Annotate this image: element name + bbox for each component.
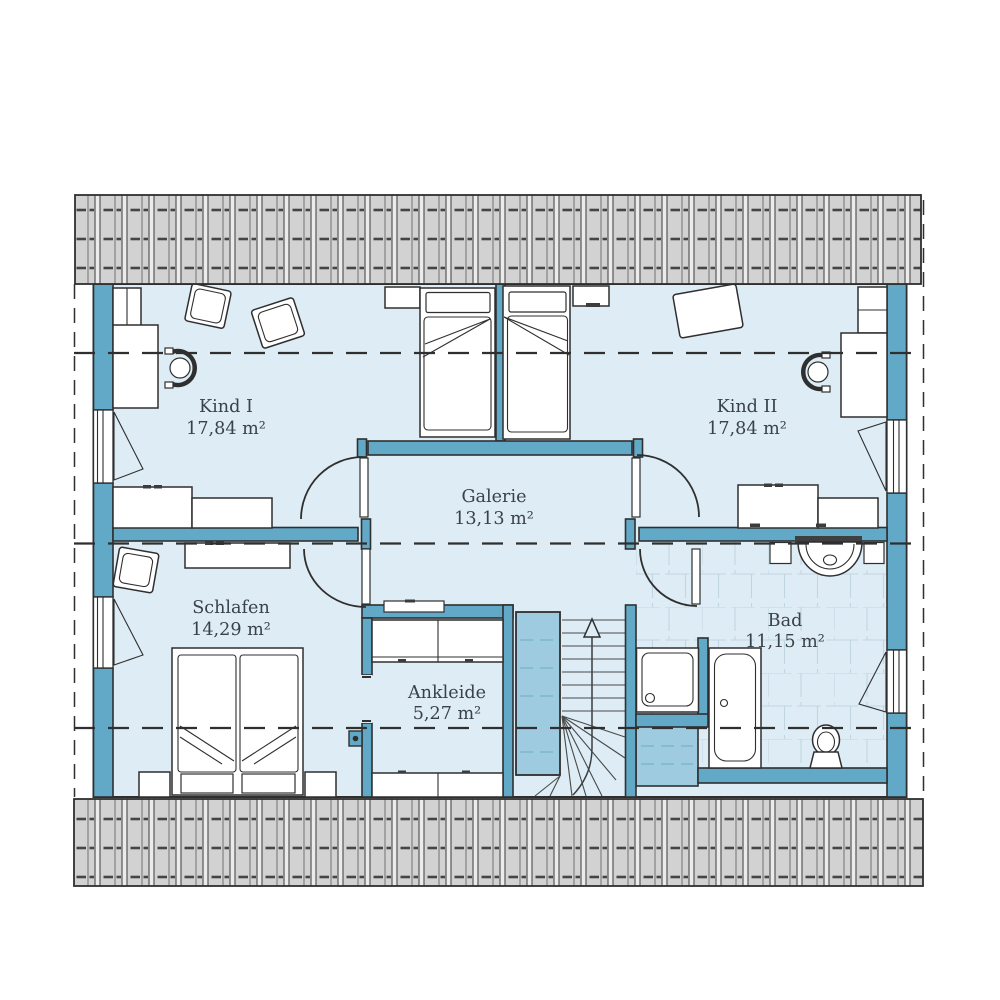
sliding-door-ankleide	[361, 675, 373, 723]
furniture-galerie	[384, 600, 444, 613]
wall-socket	[750, 524, 760, 528]
floor-cushion	[184, 283, 231, 328]
nightstand	[385, 287, 420, 308]
room-label-schlafen: Schlafen	[192, 598, 270, 618]
wall-left-upper	[94, 284, 114, 410]
wall-ankleide-left-upper	[362, 618, 372, 675]
wall-below-shower	[636, 714, 708, 727]
nightstand	[139, 772, 170, 797]
room-label-bad: Bad	[768, 611, 803, 631]
wall-left-lower	[94, 668, 114, 797]
wall-ankleide-left-lower	[362, 723, 372, 797]
toilet	[810, 725, 842, 768]
desk	[113, 325, 158, 408]
shower	[637, 648, 699, 712]
room-area-schlafen: 14,29 m²	[191, 620, 271, 640]
low-headroom-area	[636, 726, 698, 786]
room-area-bad: 11,15 m²	[745, 632, 825, 652]
floor-plan: Kind I 17,84 m² Kind II 17,84 m² Galerie…	[0, 0, 1000, 1000]
room-area-ankleide: 5,27 m²	[413, 704, 482, 724]
sideboard	[192, 498, 272, 528]
roof-hatch-bottom	[74, 799, 923, 886]
floor-cushion	[113, 547, 159, 593]
stair-void	[516, 612, 560, 775]
door-leaf-schlafen	[362, 549, 370, 604]
bed-kind1	[420, 288, 495, 437]
sideboard	[818, 498, 878, 528]
door-leaf-bad	[692, 549, 700, 604]
pillow	[509, 292, 566, 312]
room-label-kind1: Kind I	[199, 397, 253, 417]
pillow	[426, 293, 490, 313]
room-area-kind2: 17,84 m²	[707, 419, 787, 439]
wall-galerie-top	[368, 441, 632, 455]
wall-stair-bad	[626, 605, 637, 797]
double-bed	[172, 648, 303, 795]
sideboard	[185, 543, 290, 568]
sideboard	[113, 487, 192, 528]
sideboard	[738, 485, 818, 528]
bath-shelf	[864, 543, 884, 564]
pillow	[181, 774, 233, 793]
wall-left-middle	[94, 483, 114, 597]
wall-socket	[816, 524, 826, 528]
wall-kind1-schlafen	[113, 528, 358, 542]
bathtub	[709, 648, 761, 768]
room-label-ankleide: Ankleide	[407, 683, 486, 703]
desk	[841, 333, 887, 417]
wall-ankleide-right	[503, 605, 513, 797]
roof-hatch-top	[75, 195, 921, 284]
nightstand	[305, 772, 336, 797]
room-area-kind1: 17,84 m²	[186, 419, 266, 439]
bath-shelf	[770, 543, 791, 564]
door-leaf-kind2	[632, 458, 640, 517]
wall-right-middle	[887, 493, 907, 650]
wall-cap-galerie-left	[358, 439, 367, 457]
wardrobe-bottom	[372, 771, 503, 798]
door-leaf-kind1	[360, 458, 368, 517]
wall-right-lower	[887, 713, 907, 797]
room-label-galerie: Galerie	[461, 487, 526, 507]
pillow	[242, 774, 295, 793]
wardrobe-top	[372, 620, 503, 662]
wall-shower-partition	[698, 638, 708, 726]
room-area-galerie: 13,13 m²	[454, 509, 534, 529]
wall-bad-bottom	[698, 768, 887, 783]
bed-kind2	[503, 286, 570, 439]
room-label-kind2: Kind II	[717, 397, 778, 417]
sideboard	[384, 601, 444, 612]
light-switch	[349, 731, 362, 746]
